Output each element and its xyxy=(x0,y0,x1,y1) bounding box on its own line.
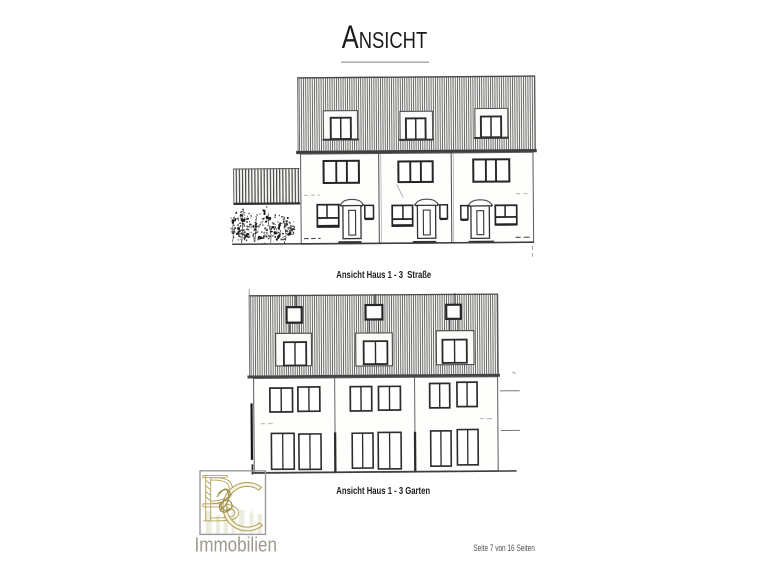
svg-text:Seite 7 von 16 Seiten: Seite 7 von 16 Seiten xyxy=(473,543,535,553)
svg-text:Ansicht Haus 1 - 3 Garten: Ansicht Haus 1 - 3 Garten xyxy=(336,486,430,497)
svg-text:Ansicht Haus 1 - 3 Straße: Ansicht Haus 1 - 3 Straße xyxy=(336,270,431,281)
svg-text:Immobilien: Immobilien xyxy=(195,534,278,557)
